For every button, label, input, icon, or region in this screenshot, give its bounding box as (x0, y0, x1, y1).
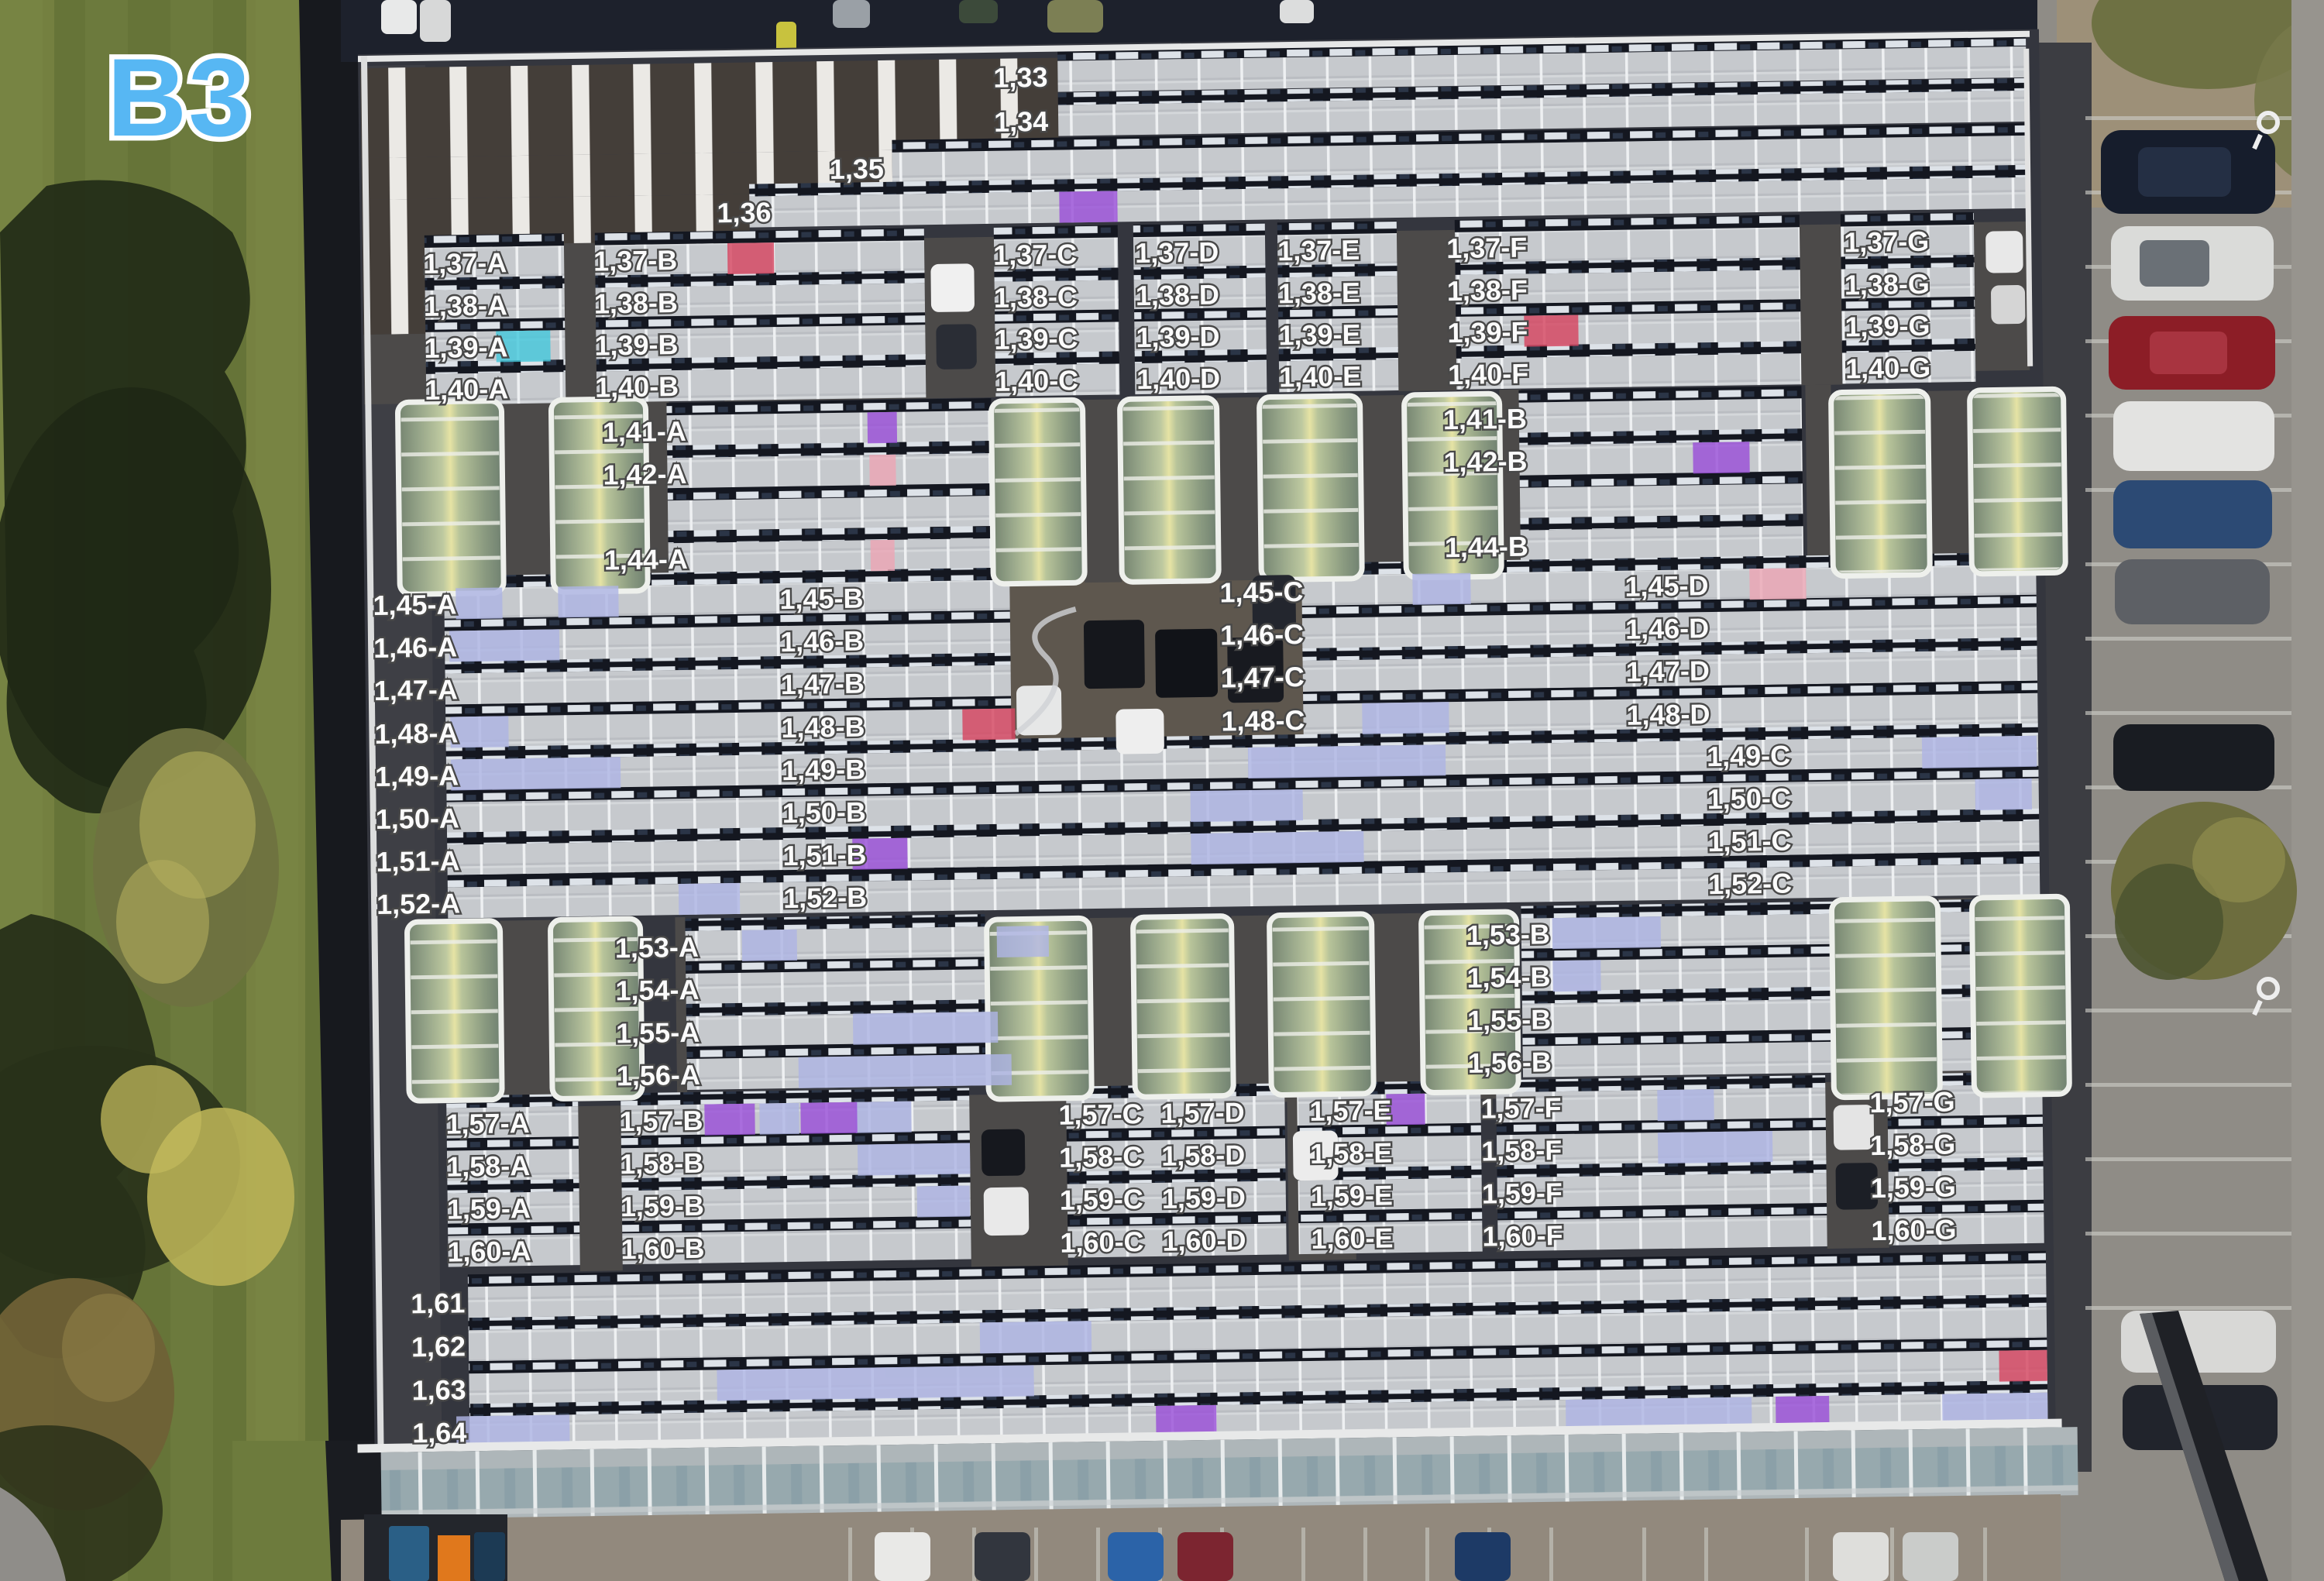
svg-text:1,58-D: 1,58-D (1161, 1139, 1246, 1172)
svg-text:1,53-B: 1,53-B (1466, 918, 1551, 951)
svg-text:1,35: 1,35 (830, 153, 885, 185)
svg-text:1,57-A: 1,57-A (445, 1107, 530, 1140)
svg-text:1,37-B: 1,37-B (593, 244, 678, 277)
svg-text:1,58-E: 1,58-E (1310, 1136, 1393, 1170)
svg-text:1,62: 1,62 (411, 1330, 466, 1363)
svg-text:1,40-F: 1,40-F (1448, 358, 1529, 391)
svg-text:1,60-B: 1,60-B (621, 1232, 705, 1266)
svg-text:1,55-A: 1,55-A (616, 1016, 700, 1050)
svg-text:1,38-D: 1,38-D (1136, 279, 1220, 312)
svg-text:1,59-E: 1,59-E (1311, 1179, 1394, 1212)
svg-text:1,38-A: 1,38-A (424, 289, 508, 322)
svg-text:1,59-C: 1,59-C (1060, 1183, 1144, 1216)
svg-text:1,59-D: 1,59-D (1162, 1181, 1246, 1215)
svg-text:1,46-B: 1,46-B (780, 624, 865, 658)
svg-text:B3: B3 (107, 36, 252, 160)
svg-text:1,49-A: 1,49-A (375, 759, 459, 792)
svg-text:1,53-A: 1,53-A (615, 931, 700, 964)
svg-text:1,38-G: 1,38-G (1844, 268, 1930, 301)
svg-text:1,40-E: 1,40-E (1279, 360, 1362, 394)
svg-text:1,51-C: 1,51-C (1707, 825, 1792, 858)
svg-text:1,56-A: 1,56-A (617, 1059, 701, 1092)
svg-text:1,54-A: 1,54-A (615, 974, 700, 1007)
svg-text:1,58-C: 1,58-C (1059, 1140, 1143, 1174)
svg-text:1,50-B: 1,50-B (782, 796, 867, 829)
svg-text:1,39-D: 1,39-D (1136, 321, 1220, 354)
svg-text:1,54-B: 1,54-B (1466, 961, 1551, 994)
svg-text:1,52-A: 1,52-A (376, 887, 461, 920)
svg-text:1,39-E: 1,39-E (1278, 318, 1361, 352)
svg-text:1,45-A: 1,45-A (373, 588, 457, 621)
svg-text:1,60-F: 1,60-F (1482, 1219, 1563, 1253)
svg-text:1,44-B: 1,44-B (1445, 531, 1529, 564)
svg-text:1,50-A: 1,50-A (376, 802, 460, 835)
svg-text:1,48-B: 1,48-B (781, 710, 865, 744)
svg-text:1,59-B: 1,59-B (621, 1190, 705, 1223)
svg-text:1,37-G: 1,37-G (1844, 225, 1930, 259)
svg-text:1,60-E: 1,60-E (1311, 1222, 1394, 1255)
svg-text:1,45-D: 1,45-D (1624, 569, 1709, 603)
svg-text:1,50-C: 1,50-C (1707, 782, 1792, 816)
svg-text:1,48-C: 1,48-C (1221, 704, 1305, 737)
svg-text:1,40-C: 1,40-C (995, 364, 1079, 397)
svg-text:1,47-A: 1,47-A (374, 673, 459, 706)
svg-text:1,38-B: 1,38-B (594, 287, 679, 320)
svg-text:1,58-A: 1,58-A (446, 1150, 531, 1183)
svg-text:1,59-A: 1,59-A (447, 1192, 531, 1225)
svg-text:1,59-G: 1,59-G (1871, 1170, 1957, 1204)
svg-text:1,44-A: 1,44-A (604, 543, 689, 576)
svg-text:1,49-B: 1,49-B (782, 753, 866, 786)
svg-text:1,58-B: 1,58-B (620, 1147, 704, 1181)
svg-text:1,47-C: 1,47-C (1221, 661, 1305, 694)
svg-text:1,59-F: 1,59-F (1482, 1177, 1563, 1210)
svg-text:1,40-G: 1,40-G (1845, 352, 1931, 385)
svg-text:1,45-B: 1,45-B (779, 582, 864, 615)
svg-text:1,56-B: 1,56-B (1468, 1046, 1552, 1079)
svg-text:1,57-C: 1,57-C (1058, 1098, 1143, 1131)
svg-text:1,39-A: 1,39-A (424, 331, 508, 364)
svg-text:1,46-A: 1,46-A (373, 631, 458, 664)
svg-text:1,51-B: 1,51-B (782, 838, 867, 871)
svg-text:1,57-B: 1,57-B (619, 1105, 703, 1138)
svg-text:1,37-A: 1,37-A (423, 246, 507, 280)
svg-text:1,58-F: 1,58-F (1481, 1134, 1563, 1167)
svg-text:1,42-A: 1,42-A (603, 458, 687, 491)
svg-text:1,63: 1,63 (411, 1373, 466, 1406)
svg-text:1,38-C: 1,38-C (994, 280, 1078, 314)
svg-text:1,61: 1,61 (411, 1287, 466, 1319)
svg-text:1,36: 1,36 (717, 196, 772, 229)
svg-text:1,47-D: 1,47-D (1626, 655, 1710, 688)
svg-text:1,37-E: 1,37-E (1277, 234, 1360, 267)
svg-text:1,40-B: 1,40-B (595, 370, 679, 404)
svg-text:1,38-F: 1,38-F (1447, 274, 1528, 308)
svg-text:1,34: 1,34 (994, 105, 1049, 138)
svg-text:1,45-C: 1,45-C (1219, 576, 1304, 609)
svg-text:1,60-D: 1,60-D (1162, 1224, 1246, 1257)
svg-text:1,42-B: 1,42-B (1443, 445, 1528, 479)
svg-text:1,60-G: 1,60-G (1871, 1213, 1957, 1246)
svg-text:1,47-B: 1,47-B (781, 667, 865, 700)
svg-text:1,49-C: 1,49-C (1707, 740, 1791, 773)
svg-text:1,41-B: 1,41-B (1443, 403, 1528, 436)
svg-text:1,52-C: 1,52-C (1708, 868, 1793, 901)
svg-text:1,60-C: 1,60-C (1060, 1225, 1144, 1259)
svg-text:1,48-A: 1,48-A (374, 717, 459, 750)
svg-text:1,51-A: 1,51-A (376, 844, 460, 878)
svg-text:1,37-D: 1,37-D (1135, 236, 1219, 270)
svg-text:1,39-G: 1,39-G (1844, 310, 1930, 343)
svg-text:1,37-F: 1,37-F (1446, 232, 1528, 265)
svg-text:1,41-A: 1,41-A (603, 415, 687, 449)
svg-text:1,40-A: 1,40-A (425, 373, 509, 406)
svg-text:1,58-G: 1,58-G (1870, 1128, 1956, 1161)
svg-text:1,55-B: 1,55-B (1467, 1003, 1552, 1036)
svg-text:1,48-D: 1,48-D (1626, 698, 1710, 731)
svg-text:1,57-G: 1,57-G (1869, 1085, 1955, 1119)
svg-text:1,64: 1,64 (412, 1416, 467, 1449)
svg-text:1,40-D: 1,40-D (1136, 363, 1221, 396)
svg-text:1,39-F: 1,39-F (1447, 316, 1528, 349)
svg-text:1,57-F: 1,57-F (1480, 1091, 1562, 1125)
svg-text:1,57-D: 1,57-D (1160, 1096, 1245, 1129)
svg-text:1,37-C: 1,37-C (993, 238, 1078, 271)
svg-text:1,33: 1,33 (993, 61, 1048, 94)
svg-text:1,39-C: 1,39-C (994, 322, 1078, 356)
svg-text:1,38-E: 1,38-E (1278, 277, 1361, 310)
svg-text:1,60-A: 1,60-A (447, 1235, 531, 1268)
svg-text:1,39-B: 1,39-B (594, 328, 679, 362)
svg-text:1,46-C: 1,46-C (1220, 618, 1305, 651)
svg-text:1,57-E: 1,57-E (1309, 1094, 1392, 1127)
svg-text:1,46-D: 1,46-D (1625, 612, 1710, 645)
svg-text:1,52-B: 1,52-B (783, 881, 868, 914)
